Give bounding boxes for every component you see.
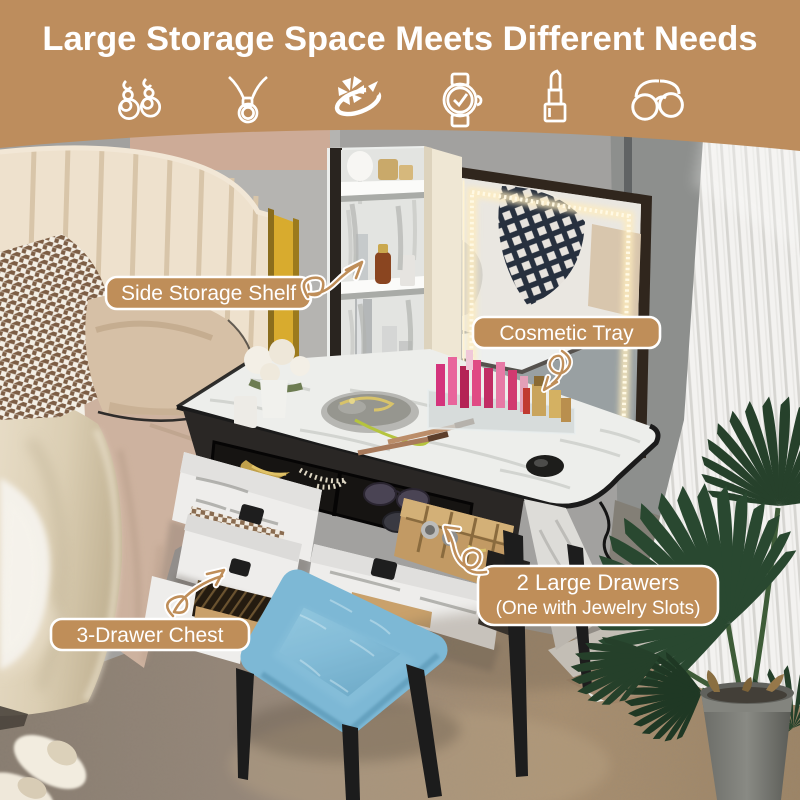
svg-text:Cosmetic Tray: Cosmetic Tray xyxy=(499,322,634,345)
svg-text:2 Large Drawers: 2 Large Drawers xyxy=(517,570,680,595)
svg-text:Side Storage Shelf: Side Storage Shelf xyxy=(121,282,296,305)
svg-text:3-Drawer Chest: 3-Drawer Chest xyxy=(76,624,223,647)
svg-text:Large Storage Space Meets Diff: Large Storage Space Meets Different Need… xyxy=(42,20,757,58)
svg-text:(One with Jewelry Slots): (One with Jewelry Slots) xyxy=(496,598,701,619)
